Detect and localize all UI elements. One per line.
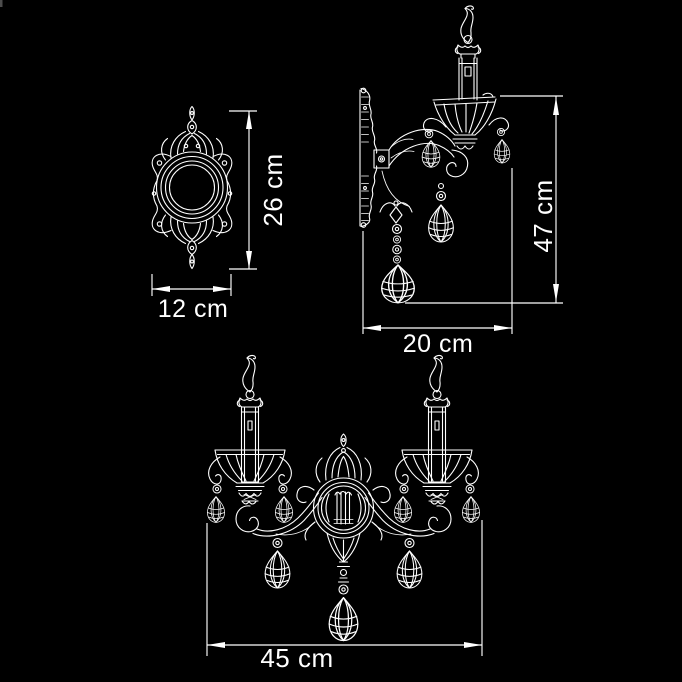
side-height-label: 47 cm [528,179,558,252]
side-depth-label: 20 cm [403,330,474,358]
backplate-width-label: 12 cm [158,295,229,323]
sconce-dimension-drawing: 26 cm 12 cm [0,0,682,682]
background [0,0,682,682]
backplate-height-label: 26 cm [258,153,288,226]
technical-drawing-canvas: 26 cm 12 cm [0,0,682,682]
front-width-label: 45 cm [260,643,333,673]
scan-artifact [0,0,3,7]
